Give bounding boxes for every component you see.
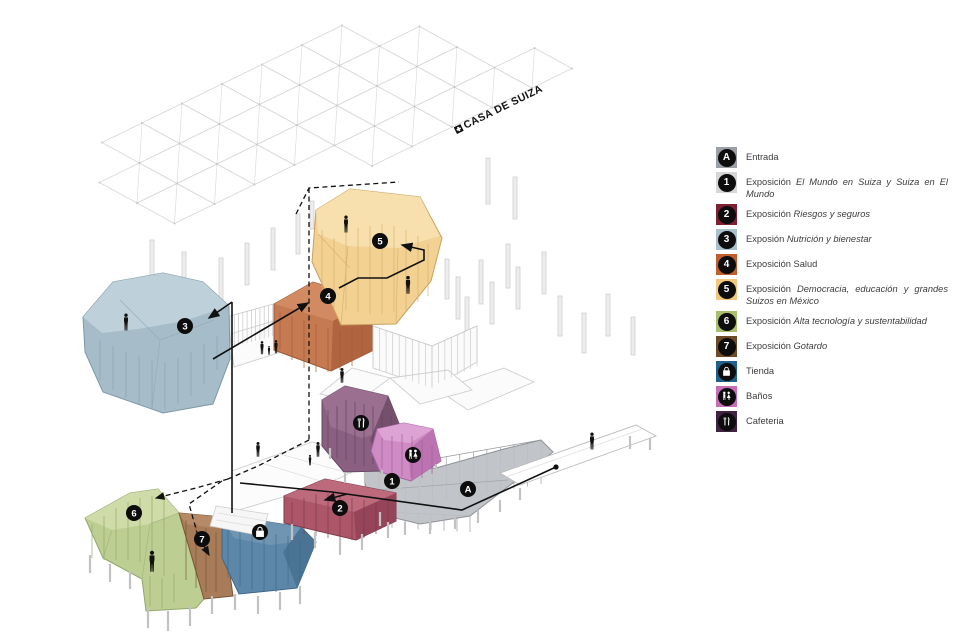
legend-label: Exposición Riesgos y seguros	[746, 204, 948, 220]
volume-exposicion-5-democracia	[312, 189, 442, 325]
legend: A Entrada 1 Exposición El Mundo en Suiza…	[716, 147, 948, 436]
marker-3: 3	[177, 318, 193, 334]
svg-text:2: 2	[337, 503, 342, 514]
legend-swatch: 1	[716, 172, 737, 193]
legend-item-exposicion-1: 1 Exposición El Mundo en Suiza y Suiza e…	[716, 172, 948, 200]
legend-item-exposicion-4: 4 Exposición Salud	[716, 254, 948, 275]
marker-2: 2	[332, 500, 348, 516]
legend-label: Exposición El Mundo en Suiza y Suiza en …	[746, 172, 948, 200]
svg-text:4: 4	[325, 291, 331, 302]
legend-item-tienda: Tienda	[716, 361, 948, 382]
legend-label: Exposición Salud	[746, 254, 948, 270]
shopping-bag-icon	[720, 365, 733, 378]
marker-tienda	[252, 524, 268, 540]
svg-text:3: 3	[182, 321, 187, 332]
legend-item-exposicion-2: 2 Exposición Riesgos y seguros	[716, 204, 948, 225]
legend-swatch: 7	[716, 336, 737, 357]
legend-marker-3: 3	[718, 231, 736, 249]
legend-swatch: A	[716, 147, 737, 168]
svg-text:5: 5	[377, 236, 383, 247]
legend-label: Cafeteria	[746, 411, 948, 427]
casa-de-suiza-axonometric-diagram: CASA DE SUIZA	[0, 0, 960, 639]
legend-item-exposicion-7: 7 Exposición Gotardo	[716, 336, 948, 357]
legend-marker-5: 5	[718, 281, 736, 299]
marker-1: 1	[384, 473, 400, 489]
legend-marker-2: 2	[718, 206, 736, 224]
marker-7: 7	[194, 531, 210, 547]
legend-swatch: 4	[716, 254, 737, 275]
legend-swatch: 5	[716, 279, 737, 300]
legend-swatch	[716, 411, 737, 432]
route-start-dot	[553, 464, 558, 469]
legend-swatch	[716, 386, 737, 407]
marker-5: 5	[372, 233, 388, 249]
legend-label: Baños	[746, 386, 948, 402]
svg-text:6: 6	[131, 508, 136, 519]
legend-marker-1: 1	[718, 174, 736, 192]
legend-item-cafeteria: Cafeteria	[716, 411, 948, 432]
dashed-arrow-to-6	[156, 479, 228, 498]
legend-swatch: 2	[716, 204, 737, 225]
legend-label: Exposión Nutrición y bienestar	[746, 229, 948, 245]
legend-label: Entrada	[746, 147, 948, 163]
legend-swatch: 3	[716, 229, 737, 250]
marker-6: 6	[126, 505, 142, 521]
legend-marker-7: 7	[718, 338, 736, 356]
volume-exposicion-3-nutricion	[83, 273, 230, 413]
svg-text:1: 1	[389, 476, 395, 487]
utensils-icon	[720, 415, 733, 428]
person-figure	[256, 442, 260, 457]
legend-label: Exposición Gotardo	[746, 336, 948, 352]
legend-label: Exposición Alta tecnología y sustentabil…	[746, 311, 948, 327]
restroom-icon	[720, 390, 733, 403]
legend-item-entrada: A Entrada	[716, 147, 948, 168]
legend-item-exposicion-5: 5 Exposición Democracia, educación y gra…	[716, 279, 948, 307]
svg-text:A: A	[465, 484, 472, 495]
roof-canopy-grid	[99, 25, 573, 225]
legend-marker-a: A	[718, 149, 736, 167]
legend-marker-6: 6	[718, 313, 736, 331]
legend-label: Tienda	[746, 361, 948, 377]
marker-entrada-a: A	[460, 481, 476, 497]
legend-swatch	[716, 361, 737, 382]
marker-4: 4	[320, 288, 336, 304]
legend-item-banos: Baños	[716, 386, 948, 407]
marker-cafeteria	[353, 415, 369, 431]
legend-label: Exposición Democracia, educación y grand…	[746, 279, 948, 307]
legend-marker-4: 4	[718, 256, 736, 274]
legend-swatch: 6	[716, 311, 737, 332]
marker-banos	[405, 447, 421, 463]
svg-text:7: 7	[199, 534, 204, 545]
legend-item-exposicion-3: 3 Exposión Nutrición y bienestar	[716, 229, 948, 250]
legend-item-exposicion-6: 6 Exposición Alta tecnología y sustentab…	[716, 311, 948, 332]
